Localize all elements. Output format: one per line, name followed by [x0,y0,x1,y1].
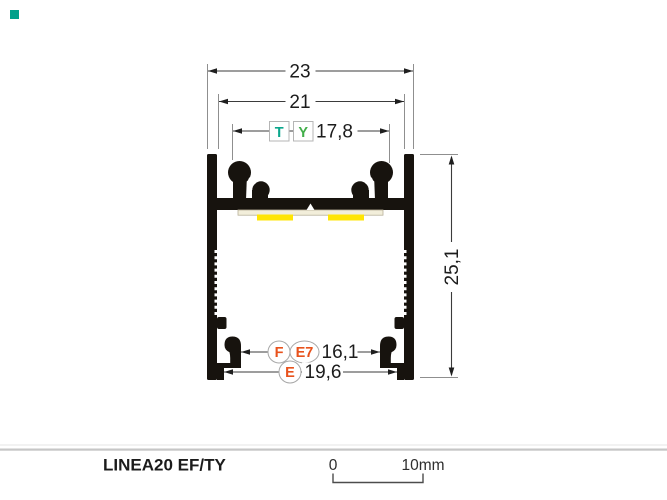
arrowhead-down-icon [449,368,455,377]
profile-right-nub [395,317,405,329]
accessory-f-label: F [275,345,284,361]
dim-cover-width-label: 17,8 [316,122,353,143]
arrowhead-left-icon [241,349,250,355]
led-pcb-strip [238,210,383,215]
arrowhead-left-icon [208,68,217,74]
footer-divider [0,449,667,451]
arrowhead-left-icon [219,99,228,105]
dim-outer-width-label: 23 [289,62,310,83]
profile-left-clip-bump-base [252,190,268,200]
profile-left-wall [207,154,217,380]
dim-outer-width: 23 [208,62,413,83]
profile-right-hook [380,337,397,365]
dim-foot-spacing: E 19,6 [224,361,397,383]
led-pad-right [328,215,364,221]
arrowhead-right-icon [380,128,389,134]
profile-right-clip-stem [374,174,388,200]
profile-right-wall [404,154,414,380]
arrowhead-left-icon [224,369,233,375]
profile-left-clip-stem [233,174,247,200]
dim-hook-spacing: F E7 16,1 [241,341,380,363]
extension-lines [208,64,459,378]
dim-height: 25,1 [442,156,463,377]
product-name: LINEA20 EF/TY [103,456,226,475]
accessory-e7-label: E7 [296,345,314,361]
cover-type-y-label: Y [298,125,308,141]
scale-ten-label: 10mm [401,457,444,474]
arrowhead-right-icon [371,349,380,355]
arrowhead-right-icon [395,99,404,105]
dim-foot-spacing-label: 19,6 [305,362,342,383]
arrowhead-right-icon [388,369,397,375]
profile-right-clip-bump-base [353,190,369,200]
cover-type-t-label: T [275,125,284,141]
arrowhead-up-icon [449,156,455,165]
profile-left-hook [225,337,242,365]
dim-cover-width: T Y 17,8 [233,122,389,143]
led-pad-left [257,215,293,221]
technical-drawing: 23 21 T Y 17,8 25,1 [0,0,667,500]
dim-inner-width: 21 [219,92,404,113]
profile-left-clip-notch [248,176,257,185]
profile-right-clip-notch [364,176,373,185]
footer-divider-light [0,445,667,446]
scale-zero-label: 0 [329,457,338,474]
dim-inner-width-label: 21 [289,92,310,113]
accessory-e-label: E [285,365,295,381]
arrowhead-right-icon [404,68,413,74]
color-swatch [10,10,19,19]
footer: LINEA20 EF/TY 0 10mm [0,445,667,483]
profile-left-nub [217,317,227,329]
arrowhead-left-icon [233,128,242,134]
dim-height-label: 25,1 [442,249,463,286]
scale-bar [333,474,423,483]
dim-hook-spacing-label: 16,1 [322,342,359,363]
